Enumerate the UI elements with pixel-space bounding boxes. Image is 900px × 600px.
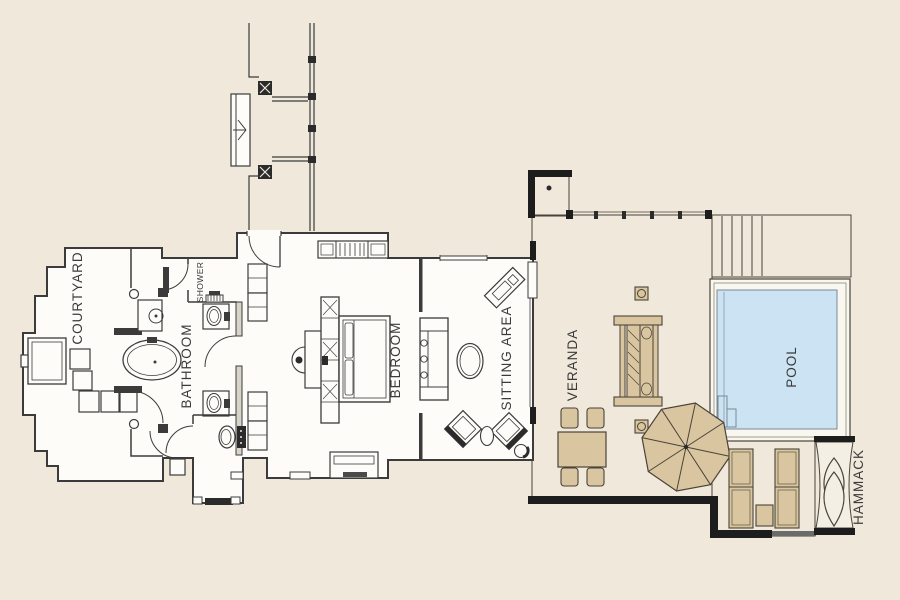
sun-lounger-icon — [775, 449, 799, 528]
pool-water — [717, 290, 837, 429]
entry-gate-panel — [231, 94, 250, 166]
room-label-courtyard: COURTYARD — [70, 251, 85, 344]
divider-wall — [419, 258, 423, 312]
garden-step — [170, 459, 185, 475]
divider-wall — [419, 413, 423, 460]
room-label-hammock: HAMMACK — [851, 449, 866, 525]
pool-area — [710, 279, 850, 441]
coffee-table-icon — [457, 344, 483, 379]
bed-console — [305, 331, 323, 388]
mattress — [339, 316, 390, 402]
hammock-area — [814, 436, 855, 535]
path-light-icon — [258, 81, 272, 95]
rear-alcove — [193, 497, 240, 505]
toilet-icon — [219, 426, 246, 448]
floor-plan-canvas: COURTYARD SHOWER BATHROOM BEDROOM SITTIN… — [0, 0, 900, 600]
hammock-post — [814, 436, 855, 442]
room-label-pool: POOL — [784, 346, 799, 388]
wardrobe-icon — [318, 241, 388, 258]
deck-edge-light — [772, 531, 816, 536]
vanity-sink-icon — [138, 300, 163, 331]
path-light-icon — [258, 165, 272, 179]
sink-icon — [203, 391, 230, 416]
sink-icon — [203, 304, 230, 329]
window-sill — [231, 472, 243, 479]
floor-plan-page: COURTYARD SHOWER BATHROOM BEDROOM SITTIN… — [0, 0, 900, 600]
room-label-shower: SHOWER — [195, 262, 205, 303]
sofa-icon — [420, 318, 448, 400]
window — [440, 255, 487, 261]
lounger-table-icon — [756, 505, 773, 526]
sun-lounger-icon — [729, 449, 753, 528]
window-bench-icon — [330, 452, 378, 478]
deck-side-table-icon — [635, 287, 648, 300]
side-table-icon — [481, 427, 494, 446]
column-icon — [130, 290, 139, 299]
stool-icon — [515, 445, 529, 458]
hammock-post — [814, 528, 855, 535]
daybed-swing-icon — [614, 316, 662, 406]
window-sill — [290, 472, 310, 479]
column-icon — [130, 420, 139, 429]
courtyard-daybed-icon — [21, 338, 66, 384]
room-label-bedroom: BEDROOM — [388, 322, 403, 399]
bathroom-east-wall — [236, 302, 242, 336]
platform-drain-icon — [547, 186, 552, 191]
room-label-bathroom: BATHROOM — [179, 324, 194, 409]
room-label-sitting-area: SITTING AREA — [499, 305, 514, 410]
room-label-veranda: VERANDA — [565, 329, 580, 401]
